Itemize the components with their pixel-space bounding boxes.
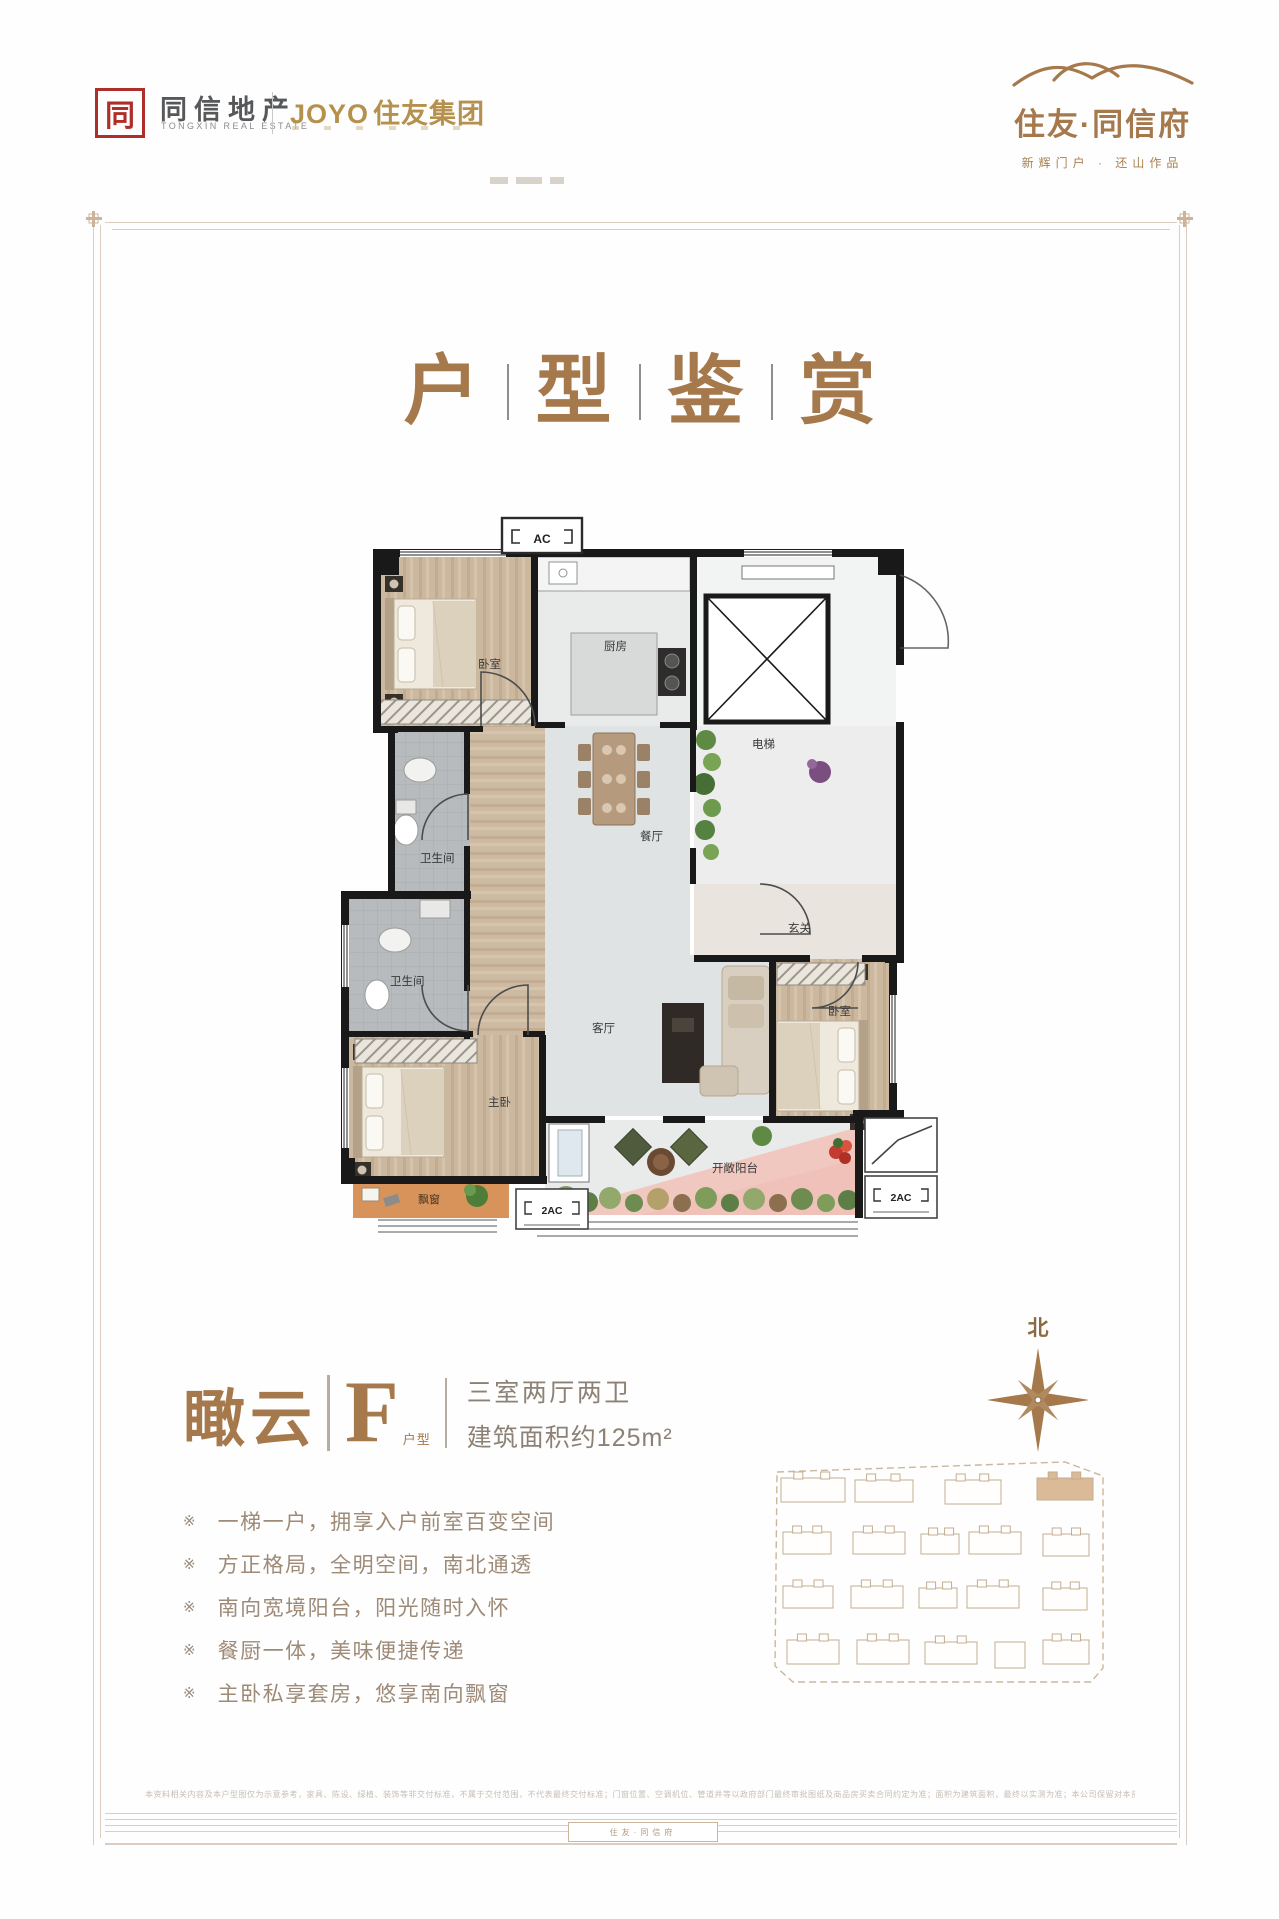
mountain-icon <box>1008 52 1198 92</box>
title-divider <box>771 364 773 420</box>
ac-box-left: 2AC <box>516 1189 588 1229</box>
title-divider <box>639 364 641 420</box>
room-label-bedroom-tl: 卧室 <box>478 657 501 671</box>
feature-marker-icon: ※ <box>183 1555 196 1573</box>
site-plan <box>765 1452 1115 1697</box>
room-label-bay: 飘窗 <box>418 1192 440 1206</box>
floor-plan: AC 2AC 2AC 卧室 厨房 电梯 餐厅 卫生间 卫生间 玄关 客厅 <box>330 505 955 1250</box>
compass: 北 <box>988 1312 1088 1463</box>
feature-item-2: ※方正格局，全明空间，南北通透 <box>183 1549 703 1579</box>
title-char-4: 赏 <box>800 352 876 432</box>
feature-list: ※一梯一户，拥享入户前室百变空间※方正格局，全明空间，南北通透※南向宽境阳台，阳… <box>183 1506 703 1721</box>
room-label-kitchen: 厨房 <box>604 640 627 653</box>
frame-left-outer <box>93 218 94 1845</box>
title-char-3: 鉴 <box>668 352 744 432</box>
unit-name: 瞰云 <box>183 1368 317 1458</box>
ac-box-right: 2AC <box>865 1176 937 1218</box>
site-plan-building <box>1043 1582 1087 1610</box>
room-label-balcony: 开敞阳台 <box>712 1161 758 1175</box>
room-label-living: 客厅 <box>592 1021 615 1035</box>
compass-star-icon <box>988 1342 1088 1458</box>
site-plan-building <box>781 1472 845 1502</box>
site-plan-building <box>995 1642 1025 1668</box>
room-label-foyer: 玄关 <box>788 921 811 935</box>
frame-bottom-heavy <box>105 1843 1177 1845</box>
feature-text: 方正格局，全明空间，南北通透 <box>218 1549 533 1579</box>
frame-left-inner <box>100 225 101 1838</box>
page-title: 户 型 鉴 赏 <box>0 352 1279 432</box>
frame-top-inner <box>112 229 1170 230</box>
site-plan-building <box>851 1580 903 1608</box>
room-label-dining: 餐厅 <box>640 829 663 843</box>
frame-corner-ornament-tl <box>84 209 104 229</box>
title-char-1: 户 <box>404 352 480 432</box>
room-label-bath-lower: 卫生间 <box>390 974 425 988</box>
frame-right-outer <box>1186 218 1187 1845</box>
unit-type-letter: F <box>345 1373 399 1453</box>
frame-bottom-line2 <box>105 1819 1177 1820</box>
site-plan-building <box>783 1580 833 1608</box>
compass-north-label: 北 <box>988 1312 1088 1342</box>
site-plan-building <box>967 1580 1019 1608</box>
frame-corner-ornament-tr <box>1175 209 1195 229</box>
frame-bottom-line1 <box>105 1813 1177 1814</box>
unit-info: 瞰云 F 户型 三室两厅两卫 建筑面积约125m² <box>183 1368 673 1458</box>
info-divider-2 <box>445 1378 447 1448</box>
site-plan-building <box>855 1474 913 1502</box>
svg-text:2AC: 2AC <box>890 1192 911 1204</box>
site-plan-building-highlighted <box>1037 1472 1093 1500</box>
frame-right-inner <box>1179 225 1180 1838</box>
unit-spec-area: 建筑面积约125m² <box>467 1418 673 1454</box>
site-plan-building <box>1043 1528 1089 1556</box>
room-label-bedroom-r: 卧室 <box>828 1004 851 1018</box>
feature-text: 主卧私享套房，悠享南向飘窗 <box>218 1678 511 1708</box>
ac-box-top: AC <box>502 518 582 553</box>
feature-marker-icon: ※ <box>183 1684 196 1702</box>
tongxin-seal-logo-icon: 同 <box>95 88 145 138</box>
feature-text: 餐厨一体，美味便捷传递 <box>218 1635 466 1665</box>
disclaimer: 本资料相关内容及本户型图仅为示意参考，家具、陈设、绿植、装饰等非交付标准，不属于… <box>145 1789 1135 1800</box>
site-plan-building <box>787 1634 839 1664</box>
frame-top-outer <box>105 222 1177 223</box>
partner-subline <box>292 126 460 130</box>
site-plan-building <box>919 1582 957 1608</box>
room-label-elevator: 电梯 <box>752 738 775 751</box>
ramp-box <box>865 1118 937 1172</box>
brand-name-en: TONGXIN REAL ESTATE <box>161 121 309 131</box>
site-plan-building <box>969 1526 1021 1554</box>
feature-marker-icon: ※ <box>183 1641 196 1659</box>
site-plan-building <box>945 1474 1001 1504</box>
title-divider <box>507 364 509 420</box>
project-logo: 住友·同信府 新辉门户 · 还山作品 <box>1000 52 1205 171</box>
site-plan-building <box>853 1526 905 1554</box>
title-char-2: 型 <box>536 352 612 432</box>
site-plan-building <box>857 1634 909 1664</box>
feature-marker-icon: ※ <box>183 1512 196 1530</box>
room-label-bath-upper: 卫生间 <box>420 851 455 865</box>
info-divider-1 <box>327 1375 330 1451</box>
feature-item-3: ※南向宽境阳台，阳光随时入怀 <box>183 1592 703 1622</box>
site-plan-building <box>783 1526 831 1554</box>
project-tagline: 新辉门户 · 还山作品 <box>1000 154 1205 171</box>
feature-marker-icon: ※ <box>183 1598 196 1616</box>
footer-seal: 住友·同信府 <box>568 1822 718 1842</box>
header-divider <box>272 92 273 134</box>
feature-item-5: ※主卧私享套房，悠享南向飘窗 <box>183 1678 703 1708</box>
project-name: 住友·同信府 <box>1000 99 1205 144</box>
feature-item-4: ※餐厨一体，美味便捷传递 <box>183 1635 703 1665</box>
room-label-master: 主卧 <box>488 1096 511 1109</box>
svg-text:2AC: 2AC <box>541 1205 562 1217</box>
site-plan-building <box>925 1636 977 1664</box>
unit-type-label: 户型 <box>403 1429 431 1448</box>
svg-text:AC: AC <box>533 532 551 546</box>
poster: 同 同信地产 TONGXIN REAL ESTATE JOYO 住友集团 住友·… <box>0 0 1279 1919</box>
unit-spec-rooms: 三室两厅两卫 <box>467 1373 673 1409</box>
site-plan-building <box>1043 1634 1089 1664</box>
feature-item-1: ※一梯一户，拥享入户前室百变空间 <box>183 1506 703 1536</box>
site-plan-building <box>921 1528 959 1554</box>
frame-top-ticks <box>490 177 564 184</box>
feature-text: 南向宽境阳台，阳光随时入怀 <box>218 1592 511 1622</box>
feature-text: 一梯一户，拥享入户前室百变空间 <box>218 1506 556 1536</box>
